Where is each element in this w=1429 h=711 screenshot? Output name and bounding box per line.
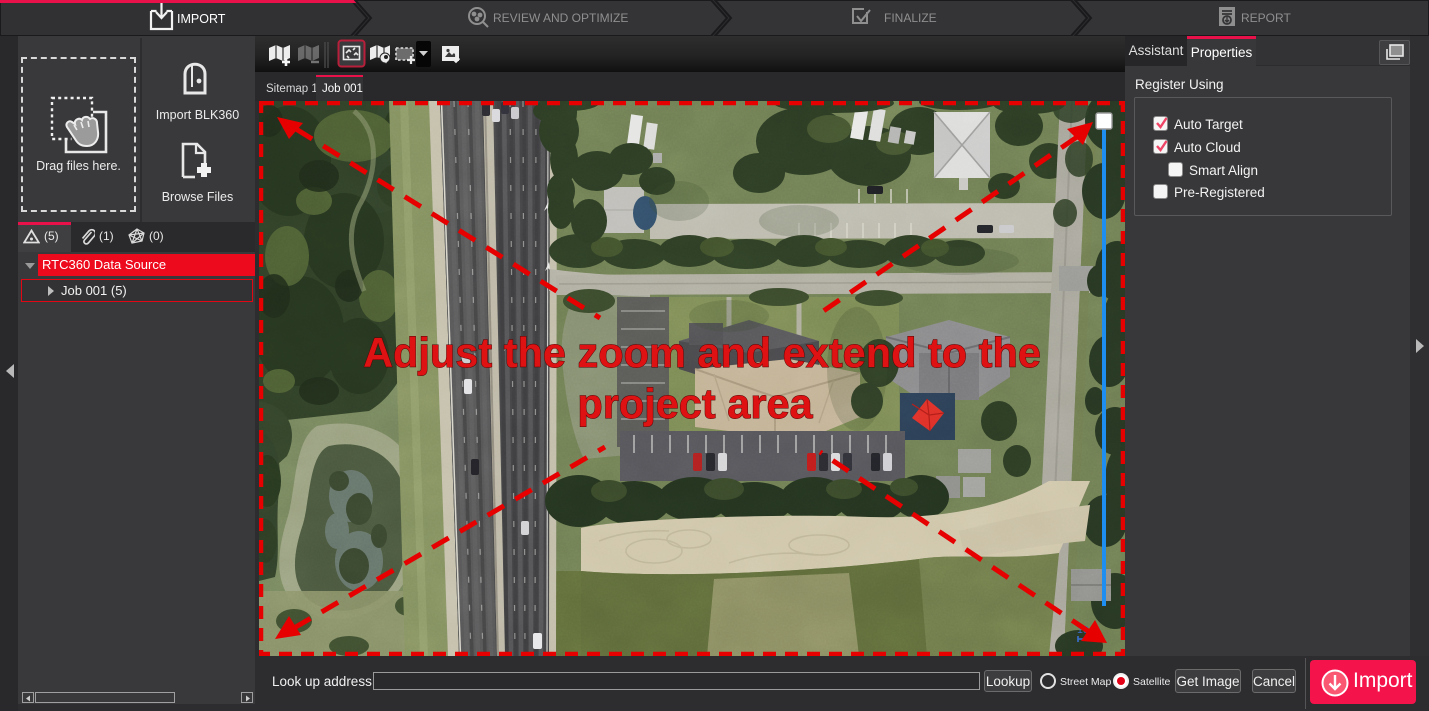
svg-text:IMPORT: IMPORT bbox=[177, 12, 226, 26]
svg-text:project area: project area bbox=[577, 380, 813, 427]
svg-text:REPORT: REPORT bbox=[1241, 11, 1291, 25]
svg-text:Adjust the zoom and extend to: Adjust the zoom and extend to the bbox=[363, 329, 1041, 376]
svg-text:FINALIZE: FINALIZE bbox=[884, 11, 937, 25]
svg-text:REVIEW AND OPTIMIZE: REVIEW AND OPTIMIZE bbox=[493, 11, 628, 25]
